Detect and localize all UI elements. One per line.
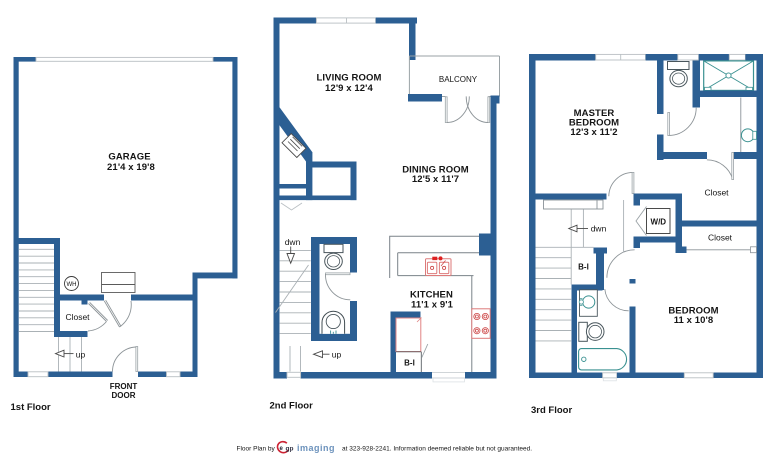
svg-text:12'3 x 11'2: 12'3 x 11'2 [570, 127, 617, 138]
svg-text:11 x 10'8: 11 x 10'8 [674, 315, 714, 326]
svg-text:11'1 x 9'1: 11'1 x 9'1 [411, 300, 454, 311]
svg-text:12'5 x 11'7: 12'5 x 11'7 [412, 174, 459, 185]
svg-text:LIVING ROOM: LIVING ROOM [317, 73, 382, 84]
svg-text:up: up [76, 349, 86, 359]
svg-text:gp: gp [286, 446, 294, 453]
svg-text:WH: WH [67, 282, 77, 288]
svg-text:FRONT: FRONT [110, 382, 138, 391]
svg-text:B-I: B-I [578, 262, 589, 271]
svg-text:Closet: Closet [65, 312, 90, 322]
svg-text:DOOR: DOOR [112, 391, 136, 400]
svg-text:W/D: W/D [651, 217, 667, 226]
svg-text:dwn: dwn [285, 237, 301, 247]
svg-text:Closet: Closet [704, 187, 729, 197]
svg-text:imaging: imaging [297, 443, 335, 453]
svg-text:3rd Floor: 3rd Floor [531, 405, 572, 416]
svg-text:Floor Plan by: Floor Plan by [237, 446, 276, 453]
svg-text:Closet: Closet [708, 232, 733, 242]
svg-text:12'9 x 12'4: 12'9 x 12'4 [325, 83, 373, 94]
svg-text:dwn: dwn [591, 224, 607, 234]
svg-text:BALCONY: BALCONY [439, 75, 478, 84]
svg-text:at 323-928-2241. Information d: at 323-928-2241. Information deemed reli… [342, 446, 532, 453]
svg-text:1st Floor: 1st Floor [11, 402, 51, 413]
svg-text:2nd Floor: 2nd Floor [270, 401, 314, 412]
svg-text:up: up [332, 350, 342, 360]
svg-text:B-I: B-I [404, 359, 415, 368]
svg-text:21'4 x 19'8: 21'4 x 19'8 [107, 162, 155, 173]
